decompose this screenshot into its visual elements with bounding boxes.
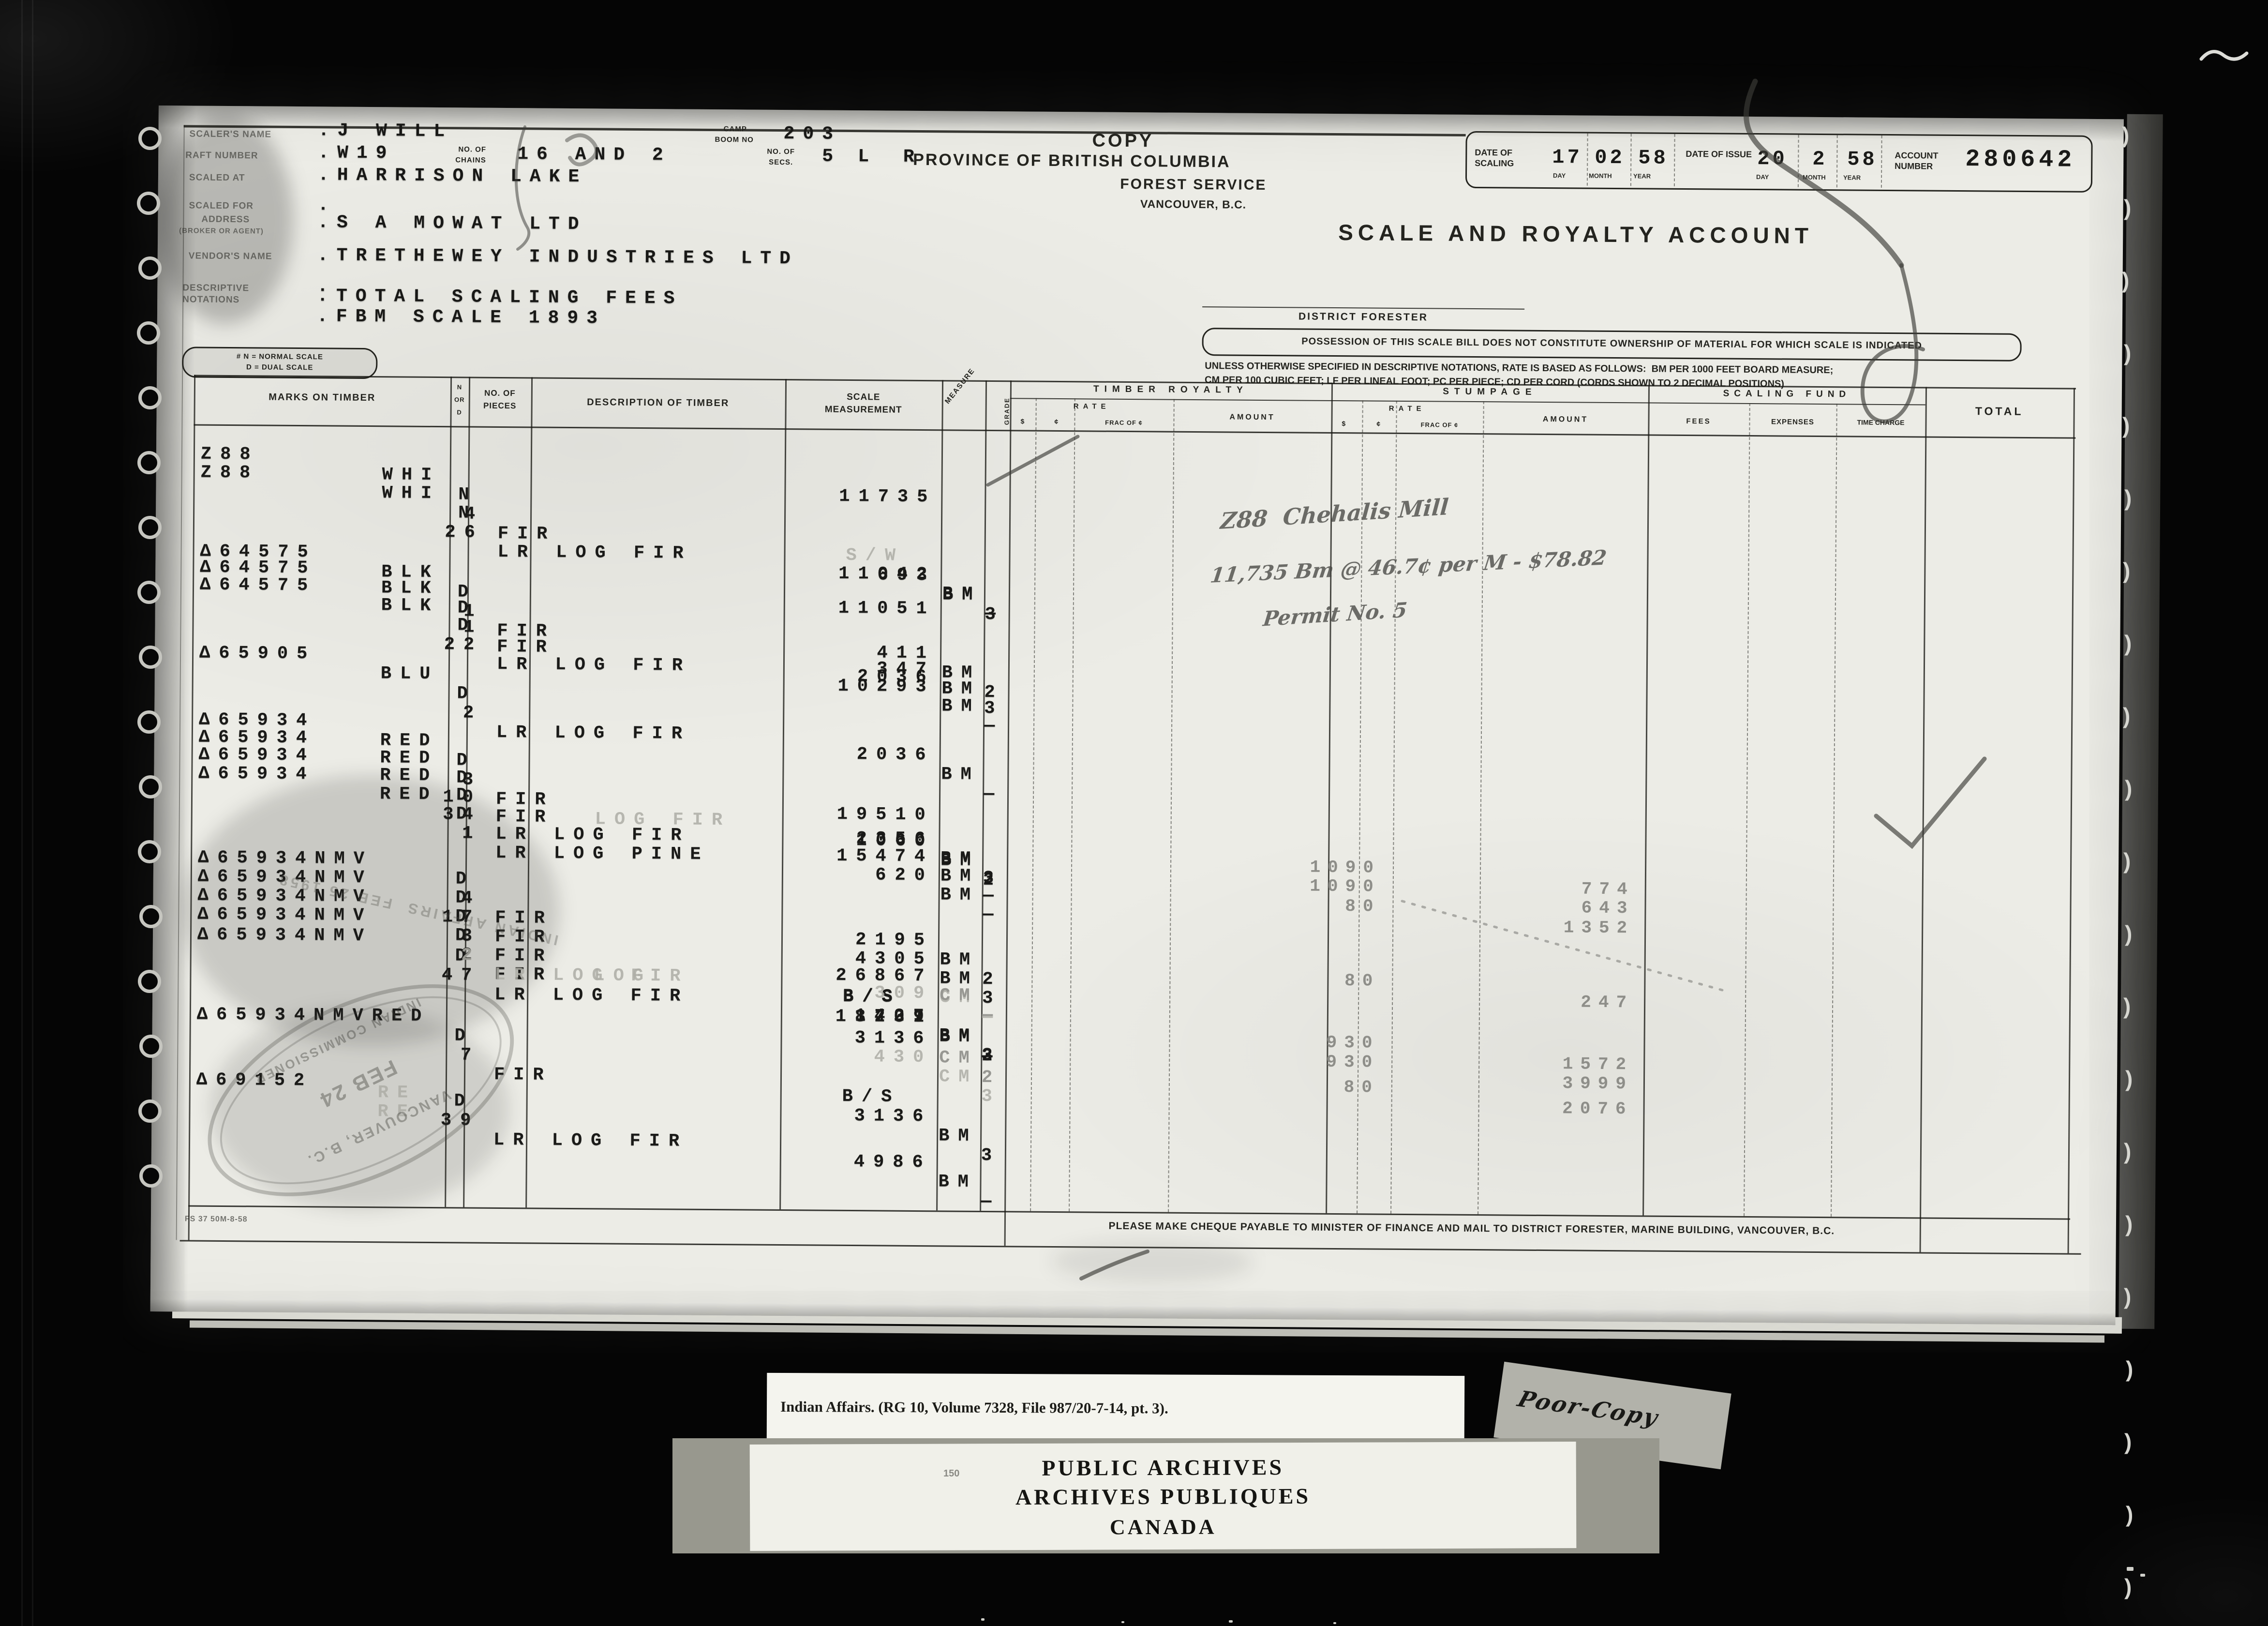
raft-number-value: .W19: [318, 142, 395, 164]
col-marks-header: MARKS ON TIMBER: [194, 391, 450, 405]
chains-label: NO. OF: [458, 145, 486, 153]
col-stumpage-header: STUMPAGE: [1331, 386, 1648, 399]
royalty-cent-header: ¢: [1054, 418, 1059, 425]
stumpage-rate-header: RATE: [1331, 404, 1483, 413]
year-label: YEAR: [1633, 172, 1651, 180]
film-perforation-mark: ): [2124, 195, 2131, 221]
col-description-header: DESCRIPTION OF TIMBER: [531, 396, 785, 409]
fees-header: FEES: [1648, 417, 1749, 426]
scale-subtotal-cell: 11051: [742, 598, 936, 618]
scale-legend-box: # N = NORMAL SCALE D = DUAL SCALE: [182, 346, 377, 379]
punch-hole: [138, 840, 161, 863]
grid-line: [1920, 387, 1927, 1252]
scalers-name-value: .J WILL: [318, 120, 453, 142]
scale-subtotal-cell: 11735: [743, 486, 936, 507]
col-nd-header: D: [450, 408, 469, 416]
film-squiggle: [2201, 52, 2247, 59]
date-divider: [1674, 134, 1675, 186]
nd-cell: N: [458, 485, 477, 504]
col-nd-header: OR: [450, 396, 469, 403]
scaled-at-value: .HARRISON LAKE: [318, 165, 588, 187]
issue-day: 20: [1757, 147, 1788, 170]
cheque-payable-note: PLEASE MAKE CHEQUE PAYABLE TO MINISTER O…: [891, 1219, 2052, 1239]
royalty-frac-header: FRAC OF ¢: [1074, 419, 1173, 426]
film-perforation-mark: ): [2124, 630, 2132, 656]
day-label: DAY: [1553, 172, 1566, 179]
film-perforation-mark: ): [2123, 993, 2131, 1019]
tiny-frame-mark: 150: [943, 1468, 959, 1479]
year-label: YEAR: [1843, 174, 1861, 181]
pencil-note-line-1: Z88 Chehalis Mill: [1220, 494, 1450, 534]
broker-agent-label: (BROKER OR AGENT): [179, 226, 264, 235]
secs-label: SECS.: [769, 158, 793, 166]
brand-cell: BLU: [381, 664, 439, 684]
film-perforation-mark: ): [2125, 1211, 2133, 1237]
brand-cell: BLK: [381, 596, 440, 616]
date-of-scaling-label: DATE OF SCALING: [1475, 147, 1547, 169]
archives-banner: PUBLIC ARCHIVES ARCHIVES PUBLIQUES CANAD…: [750, 1442, 1577, 1551]
col-measure-header: MEASURE: [943, 367, 977, 406]
date-divider: [1630, 134, 1632, 186]
col-pieces-header: NO. OF: [469, 388, 531, 398]
grade-cell: 3: [982, 1087, 1001, 1106]
possession-note: POSSESSION OF THIS SCALE BILL DOES NOT C…: [1204, 335, 2020, 352]
royalty-amount-header: AMOUNT: [1173, 413, 1331, 422]
stumpage-rate: 80: [1234, 1077, 1379, 1098]
film-perforation-mark: ): [2126, 1356, 2133, 1382]
film-speck: [2127, 1567, 2134, 1571]
film-perforation-mark: ): [2125, 1066, 2133, 1092]
grid-line: [188, 1205, 2070, 1219]
col-scale-header: MEASUREMENT: [785, 404, 942, 416]
col-total-header: TOTAL: [1925, 405, 2074, 419]
secs-label: NO. OF: [767, 148, 795, 156]
punch-hole: [138, 516, 162, 539]
legend-normal-scale: # N = NORMAL SCALE: [183, 352, 376, 361]
film-perforation-mark: ): [2124, 1429, 2132, 1455]
punch-hole: [137, 581, 161, 604]
film-scratch: [32, 0, 33, 1626]
archival-caption-text: Indian Affairs. (RG 10, Volume 7328, Fil…: [780, 1398, 1168, 1417]
form-number: FS 37 50M-8-58: [185, 1215, 248, 1224]
scaling-month: 02: [1595, 146, 1625, 169]
brand-cell: WHI: [382, 483, 440, 503]
grade-cell: —: [981, 1192, 1000, 1211]
descriptive-value-1: .TOTAL SCALING FEES: [317, 286, 683, 309]
col-grade-header: GRADE: [1003, 397, 1010, 425]
chains-value: 16 AND 2: [517, 144, 671, 166]
notations-label: NOTATIONS: [182, 294, 239, 305]
film-perforation-mark: ): [2123, 703, 2130, 729]
punch-hole: [137, 710, 161, 734]
scale-subtotal-cell: 2036: [742, 666, 935, 687]
film-perforation-mark: ): [2122, 267, 2129, 293]
film-perforation-mark: ): [2124, 485, 2132, 511]
punch-hole: [138, 970, 161, 993]
grid-line: [1004, 380, 1012, 1246]
province-title: PROVINCE OF BRITISH COLUMBIA: [913, 151, 1231, 172]
account-title: SCALE AND ROYALTY ACCOUNT: [1338, 219, 1813, 249]
archives-line-3: CANADA: [750, 1513, 1576, 1541]
punch-hole: [137, 192, 160, 215]
stumpage-cent-header: ¢: [1376, 420, 1381, 428]
punch-hole: [138, 386, 162, 409]
scaling-day: 17: [1552, 146, 1582, 169]
address-label: ADDRESS: [201, 214, 250, 226]
stumpage-amount: 2076: [1495, 1098, 1633, 1119]
note-cell: B/S: [842, 1087, 901, 1107]
date-divider: [1836, 135, 1838, 187]
punch-hole: [138, 256, 162, 280]
film-speck: [1121, 1621, 1124, 1623]
film-speck: [1229, 1620, 1233, 1623]
film-perforation-mark: ): [2123, 557, 2130, 584]
punch-hole: [138, 127, 162, 150]
film-perforation-mark: ): [2124, 340, 2131, 366]
camp-boom-value: 203: [783, 123, 841, 145]
film-perforation-mark: ): [2124, 1574, 2132, 1600]
punch-hole: [139, 905, 163, 928]
col-scaling-fund-header: SCALING FUND: [1648, 388, 1925, 401]
descriptive-value-2: .FBM SCALE 1893: [317, 306, 606, 329]
forest-service-title: FOREST SERVICE: [1102, 176, 1285, 194]
secs-value: 5: [822, 146, 841, 167]
measure-cell: BM: [939, 1126, 978, 1146]
time-charge-header: TIME CHARGE: [1836, 418, 1925, 426]
scale-subtotal-cell: 19510: [741, 804, 934, 825]
possession-note-box: POSSESSION OF THIS SCALE BILL DOES NOT C…: [1202, 328, 2021, 361]
measure-cell: BM: [938, 1172, 977, 1192]
descriptive-label: DESCRIPTIVE: [182, 283, 249, 294]
grade-cell: 3: [981, 1146, 1000, 1165]
description-cell: LR LOG FIR: [493, 1130, 688, 1151]
pencil-note-line-3: Permit No. 5: [1262, 598, 1408, 631]
day-label: DAY: [1756, 173, 1769, 181]
scaled-for-label: SCALED FOR: [189, 200, 254, 211]
punch-hole: [137, 451, 161, 474]
scaling-year: 58: [1638, 146, 1669, 169]
vancouver-subtitle: VANCOUVER, B.C.: [1102, 197, 1285, 212]
punch-hole: [139, 1164, 163, 1188]
stumpage-amount: 1352: [1496, 917, 1634, 938]
raft-number-label: RAFT NUMBER: [185, 150, 258, 161]
col-pieces-header: PIECES: [469, 401, 531, 411]
stumpage-dollar-header: $: [1342, 420, 1346, 427]
punch-hole: [139, 646, 162, 669]
legend-dual-scale: D = DUAL SCALE: [183, 362, 376, 372]
scale-cell: 4986: [738, 1151, 932, 1172]
col-timber-royalty-header: TIMBER ROYALTY: [1010, 383, 1331, 396]
signature-line: [1202, 306, 1524, 310]
scaled-at-label: SCALED AT: [189, 172, 245, 183]
expenses-header: EXPENSES: [1749, 418, 1836, 426]
account-number-label: ACCOUNT NUMBER: [1895, 150, 1972, 172]
date-account-box: DATE OF SCALING 17 02 58 DAY MONTH YEAR …: [1465, 131, 2093, 193]
punch-hole: [139, 775, 162, 798]
stumpage-amount-header: AMOUNT: [1483, 415, 1648, 424]
issue-month: 2: [1812, 148, 1828, 171]
archives-line-2: ARCHIVES PUBLIQUES: [750, 1482, 1576, 1511]
royalty-dollar-header: $: [1020, 417, 1025, 425]
stumpage-frac-header: FRAC OF ¢: [1396, 421, 1483, 429]
nd-cell: D: [456, 804, 476, 824]
punch-hole: [137, 321, 160, 345]
film-perforation-mark: ): [2122, 122, 2129, 148]
scale-cell: 3136: [738, 1105, 932, 1126]
film-perforation-mark: ): [2123, 848, 2131, 874]
stumpage-amount: 643: [1496, 897, 1634, 918]
month-label: MONTH: [1589, 172, 1612, 180]
camp-label: BOOM NO: [715, 135, 753, 144]
film-scratch: [21, 0, 23, 1626]
copy-label: COPY: [1092, 130, 1154, 151]
district-forester-label: DISTRICT FORESTER: [1202, 310, 1524, 324]
camp-label: CAMP: [724, 125, 747, 133]
archives-line-1: PUBLIC ARCHIVES: [750, 1453, 1576, 1482]
film-perforation-mark: ): [2125, 920, 2132, 947]
date-divider: [1798, 135, 1799, 187]
date-divider: [1881, 135, 1882, 188]
stumpage-rate: 80: [1235, 970, 1380, 991]
chains-label: CHAINS: [455, 156, 486, 164]
vendor-value: .TRETHEWEY INDUSTRIES LTD: [317, 245, 799, 269]
issue-year: 58: [1847, 148, 1878, 171]
col-nd-header: N: [450, 383, 469, 391]
film-speck: [1333, 1622, 1336, 1624]
grid-line: [2068, 388, 2075, 1253]
scale-bill-sheet: SCALER'S NAME .J WILL CAMP BOOM NO 203 R…: [150, 105, 2124, 1325]
film-perforation-mark: ): [2126, 1501, 2133, 1527]
date-divider: [1587, 134, 1588, 186]
stumpage-rate: 80: [1235, 896, 1380, 917]
nd-cell: N: [458, 503, 477, 523]
month-label: MONTH: [1803, 174, 1826, 181]
stumpage-amount: 247: [1496, 992, 1634, 1012]
date-of-issue-label: DATE OF ISSUE: [1686, 149, 1753, 160]
film-speck: [981, 1618, 985, 1621]
account-number-value: 280642: [1965, 146, 2075, 174]
scalers-name-label: SCALER'S NAME: [190, 129, 272, 140]
punch-hole: [139, 1035, 163, 1058]
poor-copy-text: Poor-Copy: [1515, 1386, 1662, 1431]
royalty-rate-header: RATE: [1010, 402, 1174, 411]
film-speck: [2140, 1574, 2145, 1577]
address-value: .S A MOWAT LTD: [317, 212, 587, 235]
film-perforation-mark: ): [2124, 1283, 2131, 1310]
punch-hole: [138, 1099, 162, 1123]
grade-cell: —: [985, 604, 1004, 623]
film-perforation-mark: ): [2125, 775, 2132, 801]
rate-note-1: UNLESS OTHERWISE SPECIFIED IN DESCRIPTIV…: [1205, 361, 1833, 376]
microfilm-frame: SCALER'S NAME .J WILL CAMP BOOM NO 203 R…: [0, 0, 2268, 1626]
film-perforation-mark: ): [2124, 1138, 2131, 1164]
film-perforation-mark: ): [2122, 412, 2130, 438]
vendor-label: VENDOR'S NAME: [189, 251, 272, 262]
col-scale-header: SCALE: [785, 391, 942, 403]
